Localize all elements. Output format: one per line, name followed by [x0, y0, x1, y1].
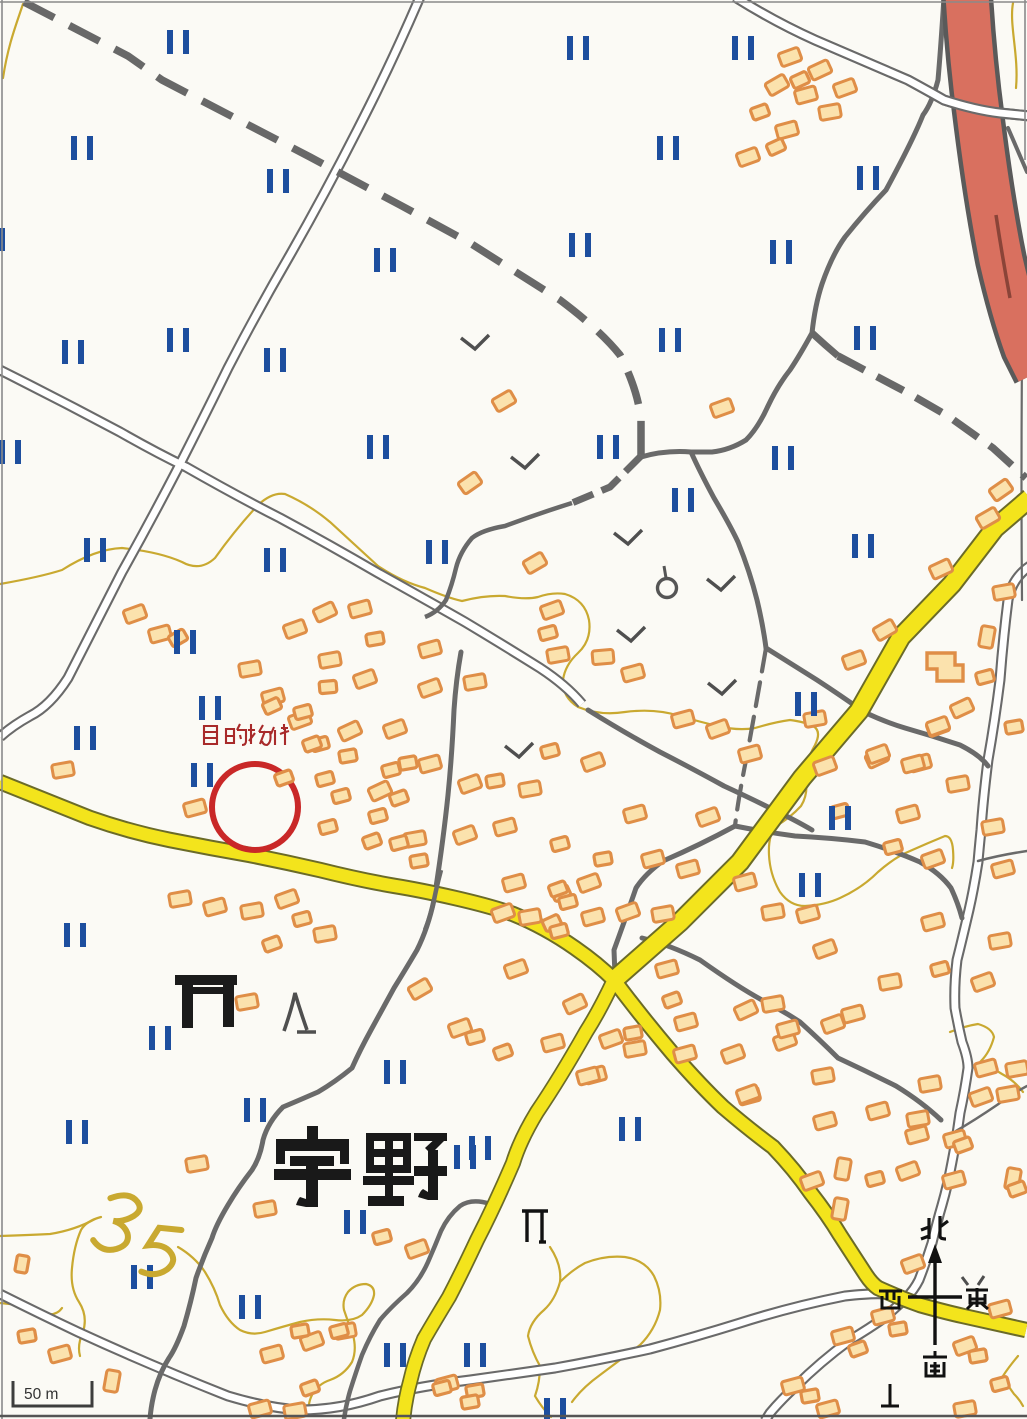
svg-text:50 m: 50 m	[24, 1386, 58, 1403]
